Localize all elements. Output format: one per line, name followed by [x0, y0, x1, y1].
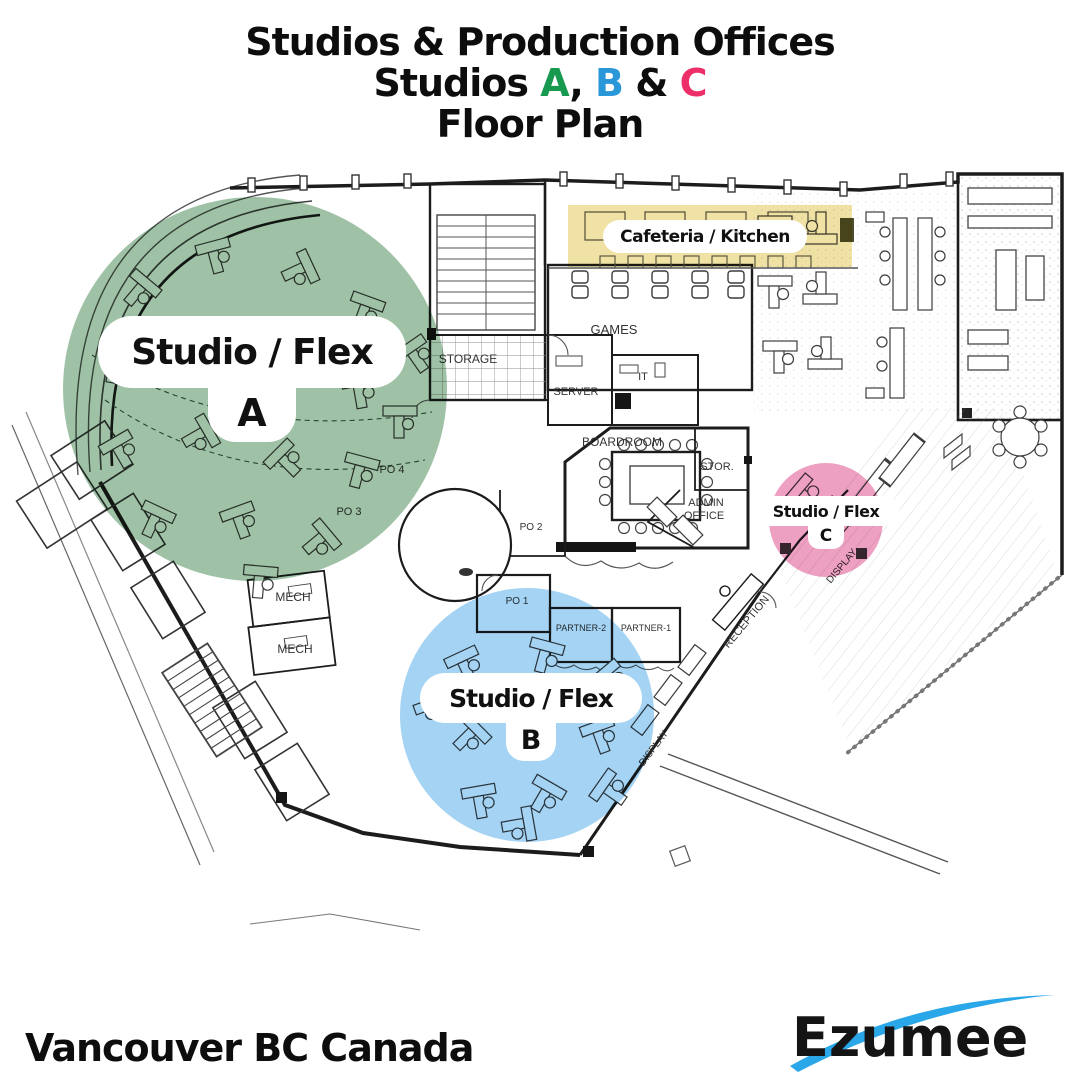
room-label-it: IT: [638, 371, 648, 383]
title-comma: ,: [569, 61, 595, 105]
brand-logo: Ezumee: [788, 982, 1058, 1077]
room-label-partner1: PARTNER-1: [621, 623, 671, 633]
studio-c-letter: C: [808, 522, 844, 549]
title-letter-c: C: [680, 61, 707, 105]
page-title: Studios & Production Offices Studios A, …: [0, 22, 1080, 145]
studio-b-letter: B: [506, 719, 556, 761]
studio-b-label: Studio / Flex: [420, 673, 642, 723]
title-letter-a: A: [540, 61, 569, 105]
room-label-mech-1: MECH: [275, 590, 310, 604]
room-label-stor: STOR.: [700, 461, 733, 473]
floor-plan-svg: GAMES STORAGE SERVER IT BOARDROOM STOR. …: [0, 160, 1080, 970]
room-label-storage: STORAGE: [439, 352, 497, 366]
brand-name: Ezumee: [792, 1006, 1028, 1069]
studio-a-label-bubble: Studio / Flex A: [98, 316, 406, 442]
title-letter-b: B: [595, 61, 623, 105]
studio-c-label-bubble: Studio / Flex C: [753, 496, 899, 549]
title-line-1: Studios & Production Offices: [0, 22, 1080, 63]
room-label-games: GAMES: [591, 322, 638, 337]
cafeteria-label: Cafeteria / Kitchen: [603, 220, 807, 253]
location-text: Vancouver BC Canada: [25, 1026, 473, 1070]
cafeteria-label-bubble: Cafeteria / Kitchen: [603, 220, 807, 253]
studio-b-label-bubble: Studio / Flex B: [420, 673, 642, 761]
title-line-2: Studios A, B & C: [0, 63, 1080, 104]
title-line-3: Floor Plan: [0, 104, 1080, 145]
room-label-po2: PO 2: [520, 522, 543, 533]
room-label-mech-2: MECH: [277, 642, 312, 656]
title-ampersand: &: [623, 61, 680, 105]
room-label-server: SERVER: [553, 386, 598, 398]
title-studios-prefix: Studios: [373, 61, 540, 105]
poster: Studios & Production Offices Studios A, …: [0, 0, 1080, 1080]
floor-plan: GAMES STORAGE SERVER IT BOARDROOM STOR. …: [0, 160, 1080, 970]
studio-a-letter: A: [208, 384, 296, 442]
room-label-admin: ADMIN: [688, 497, 724, 509]
room-label-office: OFFICE: [684, 510, 724, 522]
room-label-boardroom: BOARDROOM: [582, 435, 662, 449]
studio-a-label: Studio / Flex: [98, 316, 406, 388]
